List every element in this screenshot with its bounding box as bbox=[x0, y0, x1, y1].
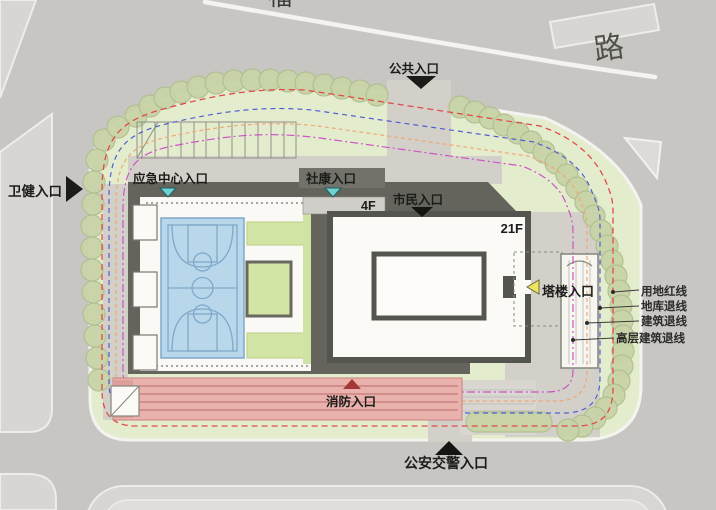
public-entrance-label: 公共入口 bbox=[389, 61, 439, 76]
emergency-entrance-label: 应急中心入口 bbox=[133, 171, 208, 186]
tower-floor-label: 21F bbox=[501, 221, 523, 236]
tower-entrance-label: 塔楼入口 bbox=[542, 284, 594, 299]
legend-item-building-setback: 建筑退线 bbox=[641, 314, 687, 328]
ramp-structure bbox=[561, 254, 598, 368]
parcel-bottom-left bbox=[0, 474, 56, 510]
parcel-left bbox=[0, 114, 52, 432]
road-name-label-partial: 福 bbox=[268, 0, 292, 11]
legend-item-highrise-setback: 高层建筑退线 bbox=[616, 331, 685, 345]
hedge-row bbox=[466, 412, 552, 432]
legend-item-basement-setback: 地库退线 bbox=[641, 299, 687, 313]
courtyard-side-rooms bbox=[133, 205, 157, 370]
citizen-entrance-label: 市民入口 bbox=[393, 192, 443, 207]
site-plan: 卫健入口 应急中心入口 社康入口 公共入口 市民入口 4F 21F 塔楼入口 消… bbox=[0, 0, 716, 510]
road-name-label: 路 bbox=[592, 30, 626, 67]
parcel-bottom-inner bbox=[104, 500, 652, 510]
podium-floor-label: 4F bbox=[361, 199, 376, 213]
public-entrance-path bbox=[387, 80, 451, 184]
community-entrance-label: 社康入口 bbox=[305, 171, 356, 186]
police-entrance-label: 公安交警入口 bbox=[404, 455, 488, 471]
fire-lane bbox=[113, 378, 462, 420]
ramp-box bbox=[111, 386, 139, 416]
site-plan-svg: 卫健入口 应急中心入口 社康入口 公共入口 市民入口 4F 21F 塔楼入口 消… bbox=[0, 0, 716, 510]
legend-item-red-line: 用地红线 bbox=[640, 284, 687, 298]
basketball-court bbox=[161, 218, 244, 358]
fire-entrance-label: 消防入口 bbox=[326, 394, 376, 409]
health-entrance-label: 卫健入口 bbox=[8, 183, 62, 199]
